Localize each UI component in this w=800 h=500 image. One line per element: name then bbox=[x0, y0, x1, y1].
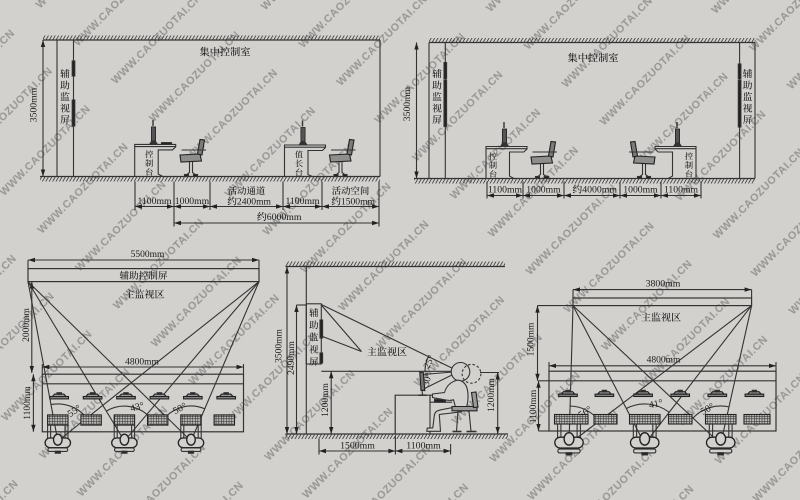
svg-text:1100mm: 1100mm bbox=[285, 196, 320, 207]
svg-text:3500mm: 3500mm bbox=[274, 329, 284, 363]
svg-text:4800mm: 4800mm bbox=[647, 355, 681, 365]
svg-text:1200mm: 1200mm bbox=[487, 378, 497, 412]
svg-text:1100mm: 1100mm bbox=[23, 386, 33, 420]
svg-text:1000mm: 1000mm bbox=[526, 185, 561, 196]
svg-text:1200mm: 1200mm bbox=[321, 383, 331, 417]
svg-text:1100mm: 1100mm bbox=[664, 185, 699, 196]
svg-text:1000mm: 1000mm bbox=[175, 196, 210, 207]
svg-text:4000mm: 4000mm bbox=[582, 185, 617, 196]
svg-text:2400mm: 2400mm bbox=[237, 197, 272, 208]
svg-text:1500mm: 1500mm bbox=[526, 322, 536, 356]
svg-text:3500mm: 3500mm bbox=[402, 86, 413, 121]
svg-text:1100mm: 1100mm bbox=[406, 441, 441, 452]
svg-text:4800mm: 4800mm bbox=[125, 357, 159, 367]
svg-text:1100mm: 1100mm bbox=[137, 196, 172, 207]
svg-text:2000mm: 2000mm bbox=[22, 308, 32, 342]
svg-text:1500mm: 1500mm bbox=[341, 197, 376, 208]
svg-text:3800mm: 3800mm bbox=[646, 279, 681, 290]
svg-text:2490mm: 2490mm bbox=[287, 341, 297, 375]
svg-text:1100mm: 1100mm bbox=[529, 389, 539, 423]
svg-text:1100mm: 1100mm bbox=[488, 185, 523, 196]
svg-text:1000mm: 1000mm bbox=[623, 185, 658, 196]
svg-text:6000mm: 6000mm bbox=[267, 212, 302, 223]
svg-text:1500mm: 1500mm bbox=[340, 441, 375, 452]
svg-text:3500mm: 3500mm bbox=[29, 87, 40, 122]
svg-text:5500mm: 5500mm bbox=[131, 250, 165, 260]
